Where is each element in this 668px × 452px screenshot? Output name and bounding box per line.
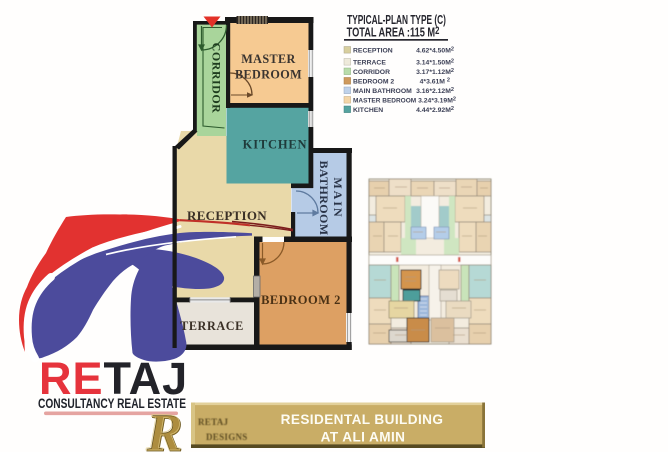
svg-text:KITCHEN: KITCHEN [243,138,308,152]
svg-text:KITCHEN: KITCHEN [353,107,383,114]
svg-text:4.62*4.50M2: 4.62*4.50M2 [416,47,454,55]
svg-text:MAIN: MAIN [331,177,345,218]
svg-text:BATHROOM: BATHROOM [317,161,331,236]
svg-text:TERRACE: TERRACE [353,60,386,67]
svg-text:3.17*1.12M2: 3.17*1.12M2 [416,68,454,76]
svg-text:MASTER: MASTER [241,52,296,66]
svg-text:DESIGNS: DESIGNS [206,432,248,442]
svg-text:MAIN BATHROOM: MAIN BATHROOM [353,88,412,95]
svg-text:3.16*2.12M2: 3.16*2.12M2 [416,87,454,95]
svg-text:RECEPTION: RECEPTION [353,48,393,55]
svg-text:CORRIDOR: CORRIDOR [210,43,224,114]
svg-text:BEDROOM 2: BEDROOM 2 [261,293,341,307]
svg-text:R: R [145,402,182,452]
svg-text:BEDROOM 2: BEDROOM 2 [353,79,394,86]
svg-text:3.14*1.50M2: 3.14*1.50M2 [416,59,454,67]
svg-text:3.24*3.19M2: 3.24*3.19M2 [418,97,456,105]
svg-text:4.44*2.92M2: 4.44*2.92M2 [416,106,454,114]
svg-text:TOTAL AREA :115 M2: TOTAL AREA :115 M2 [347,25,440,40]
svg-text:CORRIDOR: CORRIDOR [353,69,390,76]
svg-text:BEDROOM: BEDROOM [235,68,302,82]
svg-text:MASTER BEDROOM: MASTER BEDROOM [353,98,416,105]
svg-text:TERRACE: TERRACE [180,319,244,333]
svg-text:RESIDENTAL BUILDING: RESIDENTAL BUILDING [281,412,444,427]
svg-text:RECEPTION: RECEPTION [187,208,267,223]
svg-text:4*3.61M 2: 4*3.61M 2 [420,78,450,86]
svg-text:AT ALI AMIN: AT ALI AMIN [321,430,406,445]
svg-text:RETAJ: RETAJ [198,417,229,427]
